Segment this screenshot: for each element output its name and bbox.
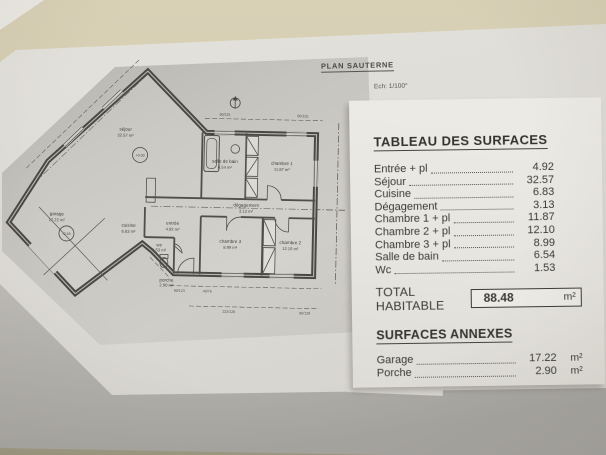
annex-row-porche: Porche 2.90 m²	[377, 364, 583, 379]
svg-text:-0.18: -0.18	[62, 232, 70, 236]
svg-text:dégagement: dégagement	[233, 202, 259, 208]
room-label-porche: porche 2.90 m²	[159, 277, 174, 287]
total-habitable-row: TOTAL HABITABLE 88.48 m²	[376, 283, 582, 314]
row-value: 12.10	[517, 224, 555, 237]
dotted-leader	[415, 375, 516, 377]
row-value: 8.99	[517, 236, 555, 249]
total-label: TOTAL HABITABLE	[376, 284, 471, 313]
room-label-garage: garage 17.22 m²	[49, 211, 66, 222]
north-arrow-icon	[230, 96, 240, 109]
surface-table-title: TABLEAU DES SURFACES	[373, 132, 547, 151]
row-value: 32.57	[516, 174, 554, 187]
svg-text:6.83 m²: 6.83 m²	[122, 229, 137, 234]
svg-text:3.13 m²: 3.13 m²	[239, 209, 254, 214]
dotted-leader	[453, 234, 513, 236]
svg-text:222/128: 222/128	[222, 310, 235, 314]
row-label: Chambre 1 + pl	[375, 213, 451, 227]
svg-text:chambre 1: chambre 1	[271, 161, 293, 166]
svg-text:80/128: 80/128	[299, 311, 310, 315]
svg-text:11.87 m²: 11.87 m²	[274, 167, 291, 172]
room-label-sejour: séjour 32.57 m²	[117, 126, 134, 137]
row-value: 3.13	[516, 199, 554, 212]
dotted-leader	[409, 184, 513, 186]
row-value: 1.53	[517, 262, 555, 275]
row-label: Dégagement	[374, 200, 437, 213]
total-value-box: 88.48 m²	[471, 287, 582, 308]
plan-title: PLAN SAUTERNE	[321, 60, 394, 73]
svg-text:séjour: séjour	[119, 127, 132, 132]
row-value: 17.22	[519, 352, 557, 365]
dotted-leader	[441, 209, 514, 211]
plan-scale-label: Ech: 1/100°	[374, 83, 408, 91]
row-value: 2.90	[519, 365, 557, 378]
svg-text:32.57 m²: 32.57 m²	[117, 132, 134, 137]
floor-plan-drawing: +0.00 -0.18 séjour 32.57 m² cuisine 6.83…	[2, 54, 376, 362]
row-value: 4.92	[516, 161, 554, 174]
total-value: 88.48	[484, 290, 514, 304]
room-label-entree: entrée 4.92 m²	[166, 221, 181, 232]
svg-text:80/125: 80/125	[297, 114, 308, 118]
svg-text:40/75: 40/75	[203, 289, 212, 293]
svg-text:1.53 m²: 1.53 m²	[152, 247, 167, 252]
row-value: 6.54	[517, 249, 555, 262]
dotted-leader	[394, 272, 514, 275]
row-label: Salle de bain	[375, 251, 439, 264]
svg-text:4.92 m²: 4.92 m²	[166, 227, 181, 232]
svg-text:chambre 3: chambre 3	[219, 239, 241, 244]
dotted-leader	[431, 171, 513, 173]
surface-table-sheet: TABLEAU DES SURFACES Entrée + pl 4.92 Sé…	[349, 97, 605, 387]
svg-text:17.22 m²: 17.22 m²	[49, 217, 66, 222]
dotted-leader	[442, 259, 514, 261]
row-label: Cuisine	[374, 188, 411, 201]
svg-text:90/123: 90/123	[174, 289, 185, 293]
dotted-leader	[416, 362, 515, 364]
row-label: Chambre 3 + pl	[375, 238, 451, 252]
row-value: 6.83	[516, 186, 554, 199]
svg-text:entrée: entrée	[166, 221, 180, 226]
svg-text:cuisine: cuisine	[121, 223, 136, 228]
svg-text:+0.00: +0.00	[136, 153, 145, 157]
svg-text:salle de bain: salle de bain	[212, 158, 238, 164]
surfaces-annexes-title: SURFACES ANNEXES	[376, 327, 513, 345]
svg-text:chambre 2: chambre 2	[279, 240, 301, 245]
dotted-leader	[453, 221, 513, 223]
row-label: Wc	[375, 264, 391, 277]
row-value: 11.87	[517, 211, 555, 224]
svg-text:12.10 m²: 12.10 m²	[282, 246, 299, 251]
svg-text:2.90 m²: 2.90 m²	[159, 282, 174, 287]
row-unit: m²	[557, 364, 583, 377]
row-label: Entrée + pl	[374, 163, 428, 176]
svg-text:garage: garage	[50, 211, 65, 216]
row-label: Séjour	[374, 176, 406, 189]
total-unit: m²	[563, 290, 575, 302]
svg-text:90/125: 90/125	[219, 113, 230, 117]
row-label: Porche	[377, 367, 412, 380]
svg-text:6.54 m²: 6.54 m²	[218, 165, 233, 170]
row-label: Chambre 2 + pl	[375, 225, 451, 239]
dotted-leader	[414, 196, 513, 198]
dotted-leader	[454, 247, 514, 249]
row-unit: m²	[557, 352, 583, 365]
room-label-cuisine: cuisine 6.83 m²	[121, 223, 136, 234]
svg-text:8.99 m²: 8.99 m²	[223, 245, 238, 250]
photo-of-floor-plan-documents: +0.00 -0.18 séjour 32.57 m² cuisine 6.83…	[0, 0, 606, 455]
row-label: Garage	[377, 354, 414, 367]
